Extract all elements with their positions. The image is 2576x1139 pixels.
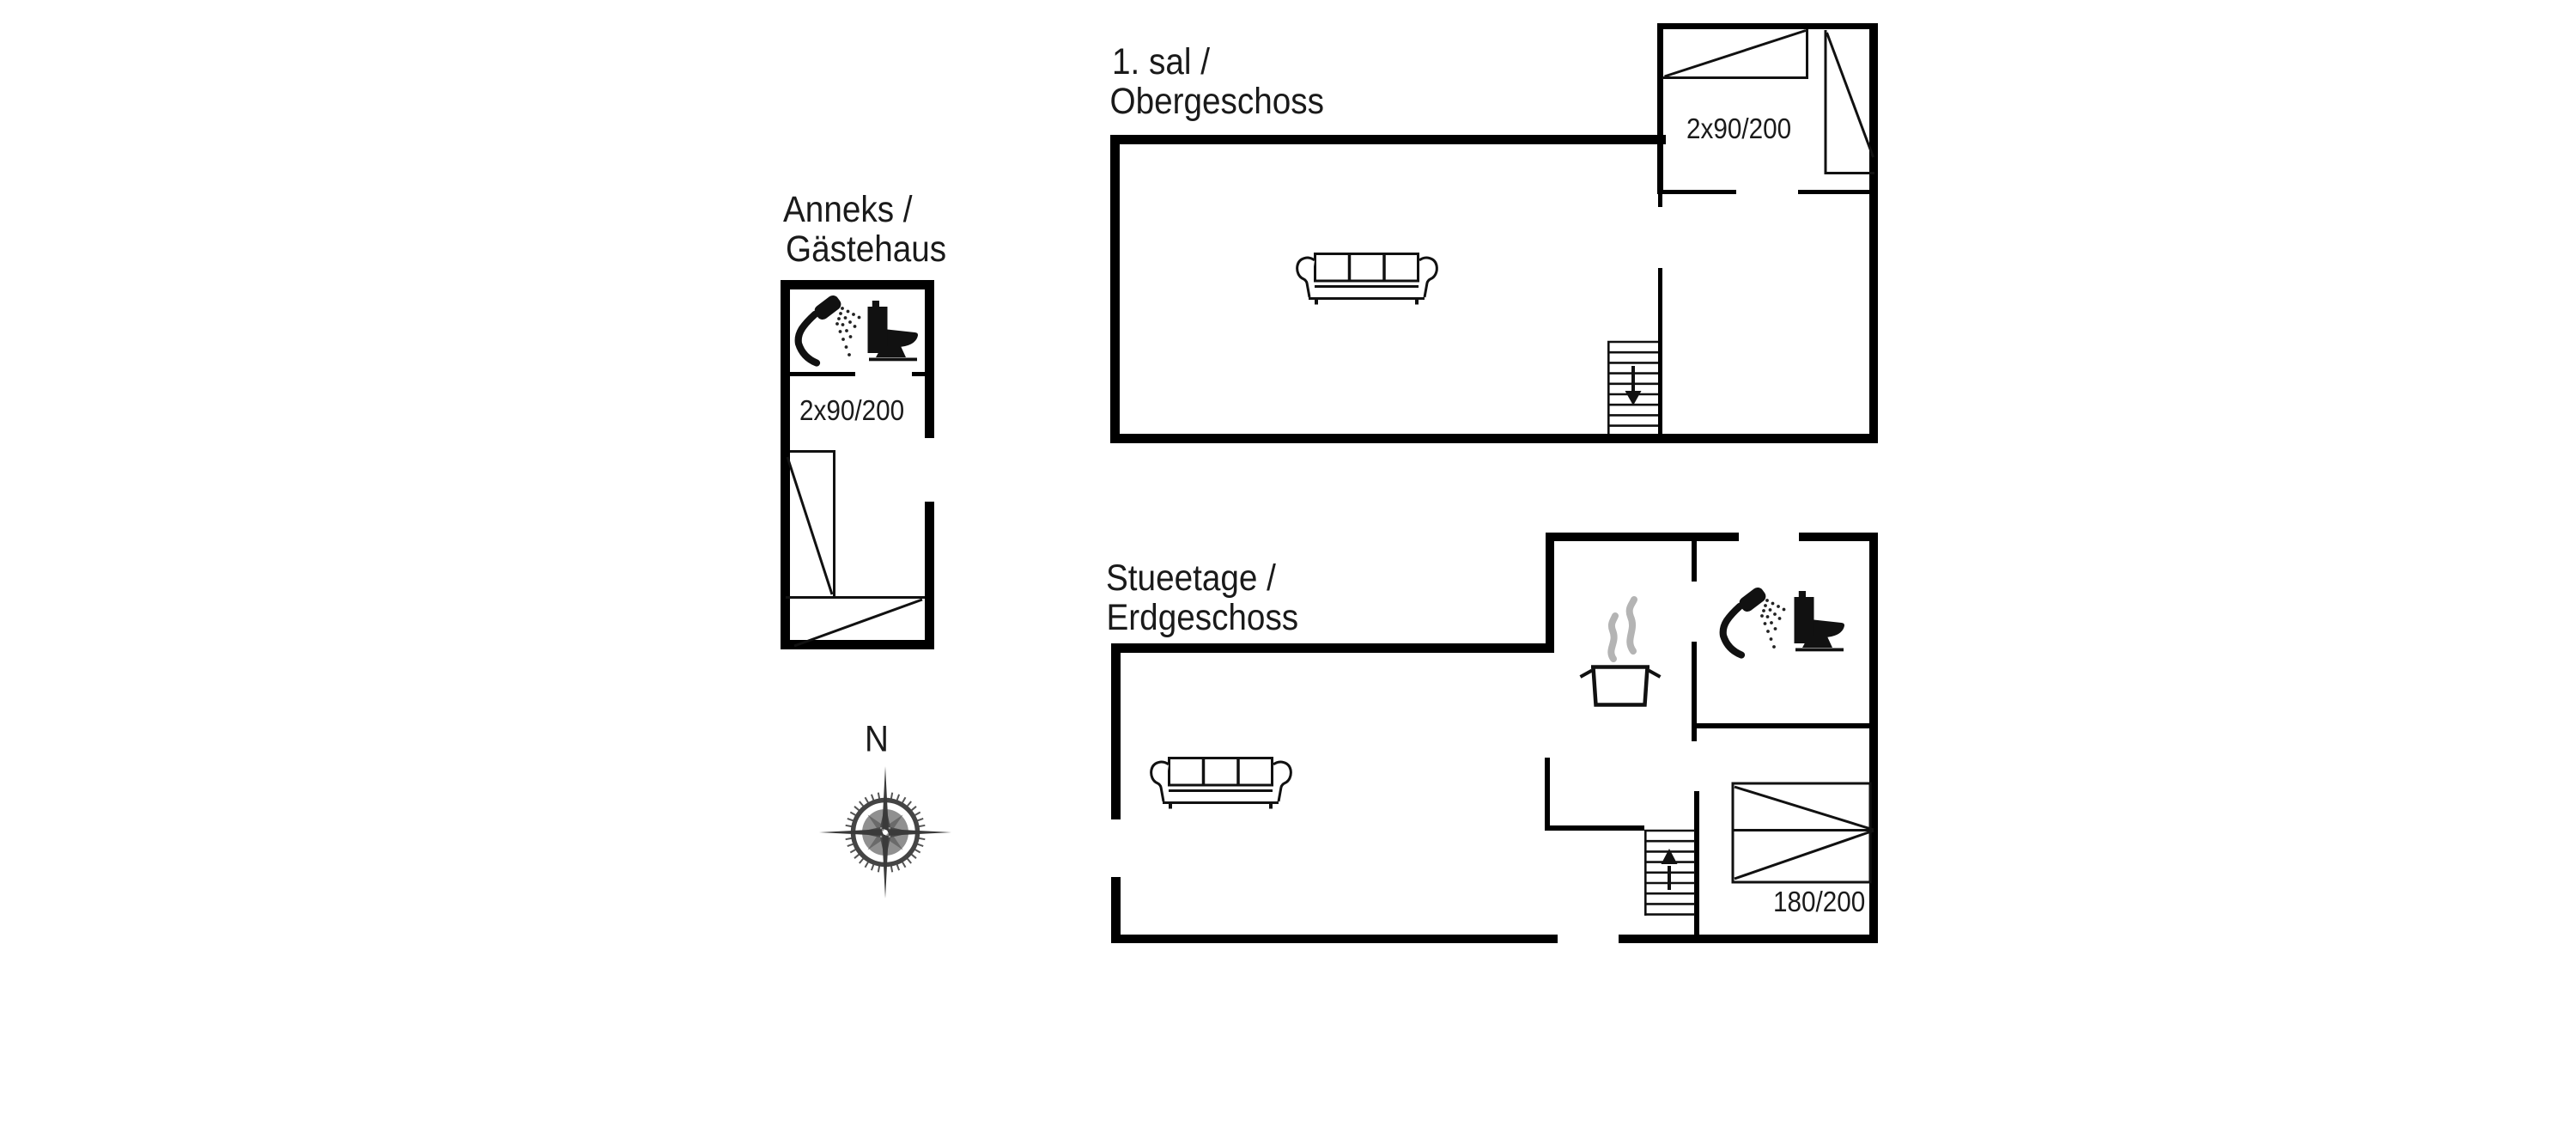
svg-text:N: N	[865, 718, 889, 759]
svg-text:Gästehaus: Gästehaus	[786, 228, 946, 269]
svg-text:2x90/200: 2x90/200	[1686, 113, 1791, 145]
svg-text:Obergeschoss: Obergeschoss	[1110, 80, 1324, 121]
svg-text:Erdgeschoss: Erdgeschoss	[1107, 596, 1299, 637]
svg-text:Stueetage /: Stueetage /	[1106, 557, 1276, 598]
svg-text:2x90/200: 2x90/200	[799, 395, 904, 427]
svg-text:180/200: 180/200	[1773, 886, 1865, 918]
svg-text:Anneks /: Anneks /	[783, 188, 913, 229]
svg-text:1. sal /: 1. sal /	[1112, 40, 1211, 82]
